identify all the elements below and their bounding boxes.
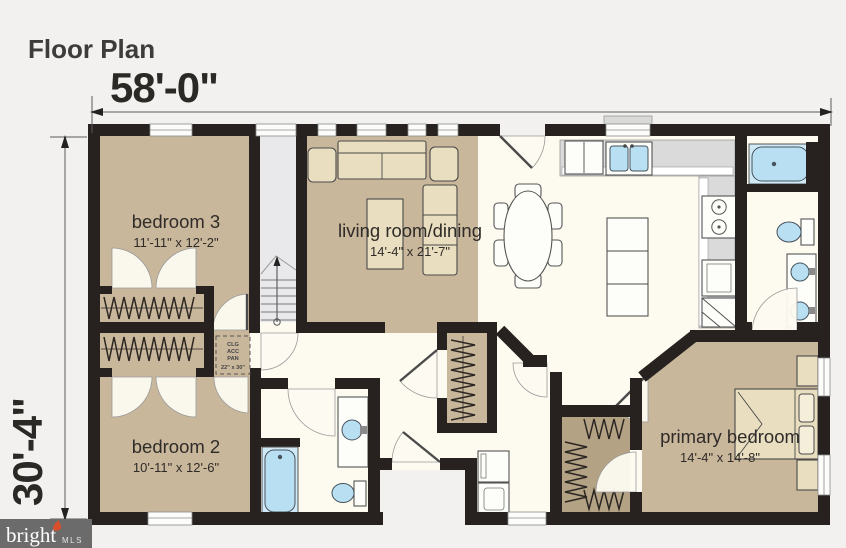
wall-kitchen-bath	[735, 136, 747, 333]
vanity-faucet-2	[809, 307, 815, 314]
window	[318, 124, 336, 136]
watermark-brand: bright	[6, 523, 56, 547]
toilet-2-bowl	[332, 484, 354, 503]
armchair-right	[430, 147, 458, 181]
room-size-living: 14'-4" x 21'-7"	[370, 244, 450, 259]
window	[408, 124, 426, 136]
room-label-bedroom3: bedroom 3	[132, 211, 220, 232]
window	[150, 124, 192, 136]
wall-stairs-left	[249, 136, 260, 333]
tub-nook-wall	[806, 142, 818, 186]
window	[256, 124, 296, 136]
room-size-primary: 14'-4" x 14'-8"	[680, 450, 760, 465]
bathtub-2-basin	[265, 450, 295, 512]
floor-plan-canvas: CLG ACC PAN 22" x 30" Floor Plan 58'-0" …	[0, 0, 846, 548]
bathtub-2-faucet	[278, 455, 282, 459]
armchair-left	[308, 148, 336, 182]
wall-stairs-right	[296, 136, 307, 333]
room-size-bedroom2: 10'-11" x 12'-6"	[133, 460, 220, 475]
clg-line-4: 22" x 30"	[221, 365, 245, 371]
window	[438, 124, 458, 136]
pillow-1	[799, 394, 814, 422]
laundry	[478, 451, 509, 514]
wall-bedroom2-right	[250, 368, 261, 513]
vanity-sink-1	[791, 263, 809, 281]
room-label-primary: primary bedroom	[660, 426, 800, 447]
window	[508, 512, 546, 525]
watermark: bright MLS	[0, 519, 92, 548]
dining-table	[504, 191, 552, 281]
sink-faucet	[623, 144, 627, 148]
kitchen-island	[607, 218, 648, 316]
pillow-2	[799, 426, 814, 454]
nightstand-2	[797, 460, 818, 490]
tub-wall	[747, 184, 818, 192]
window	[148, 512, 192, 525]
watermark-suffix: MLS	[62, 536, 83, 545]
page-title: Floor Plan	[28, 34, 155, 64]
sink-basin-right	[630, 146, 648, 171]
window	[818, 358, 830, 396]
clg-line-2: ACC	[227, 349, 239, 355]
window	[606, 124, 650, 136]
stove-burner-dot-2	[717, 225, 720, 228]
dim-depth-label: 30'-4"	[4, 398, 51, 506]
vanity-faucet-1	[809, 268, 815, 275]
toilet-1-tank	[801, 219, 814, 245]
dim-width-label: 58'-0"	[110, 64, 218, 111]
nightstand-1	[797, 356, 818, 386]
stove	[702, 196, 736, 238]
room-label-living: living room/dining	[338, 220, 482, 241]
stove-burner-dot-1	[717, 205, 720, 208]
clg-line-1: CLG	[227, 342, 239, 348]
rear-entry-notch	[380, 470, 465, 525]
washer	[478, 451, 509, 482]
bathtub-1-basin	[752, 147, 808, 181]
room-label-bedroom2: bedroom 2	[132, 436, 220, 457]
hall-vanity-faucet	[360, 426, 367, 434]
clg-line-3: PAN	[227, 356, 238, 362]
floor-plan-screenshot: CLG ACC PAN 22" x 30" Floor Plan 58'-0" …	[0, 0, 846, 548]
bathtub-1-drain	[772, 162, 776, 166]
stairwell-floor	[260, 136, 296, 322]
window	[818, 455, 830, 495]
window	[357, 124, 386, 136]
hall-vanity-sink	[342, 420, 362, 440]
room-size-bedroom3: 11'-11" x 12'-2"	[133, 235, 219, 250]
toilet-2-tank	[354, 481, 366, 506]
toilet-1-bowl	[777, 222, 801, 242]
sink-basin-left	[610, 146, 628, 171]
sink-faucet-2	[630, 144, 634, 148]
